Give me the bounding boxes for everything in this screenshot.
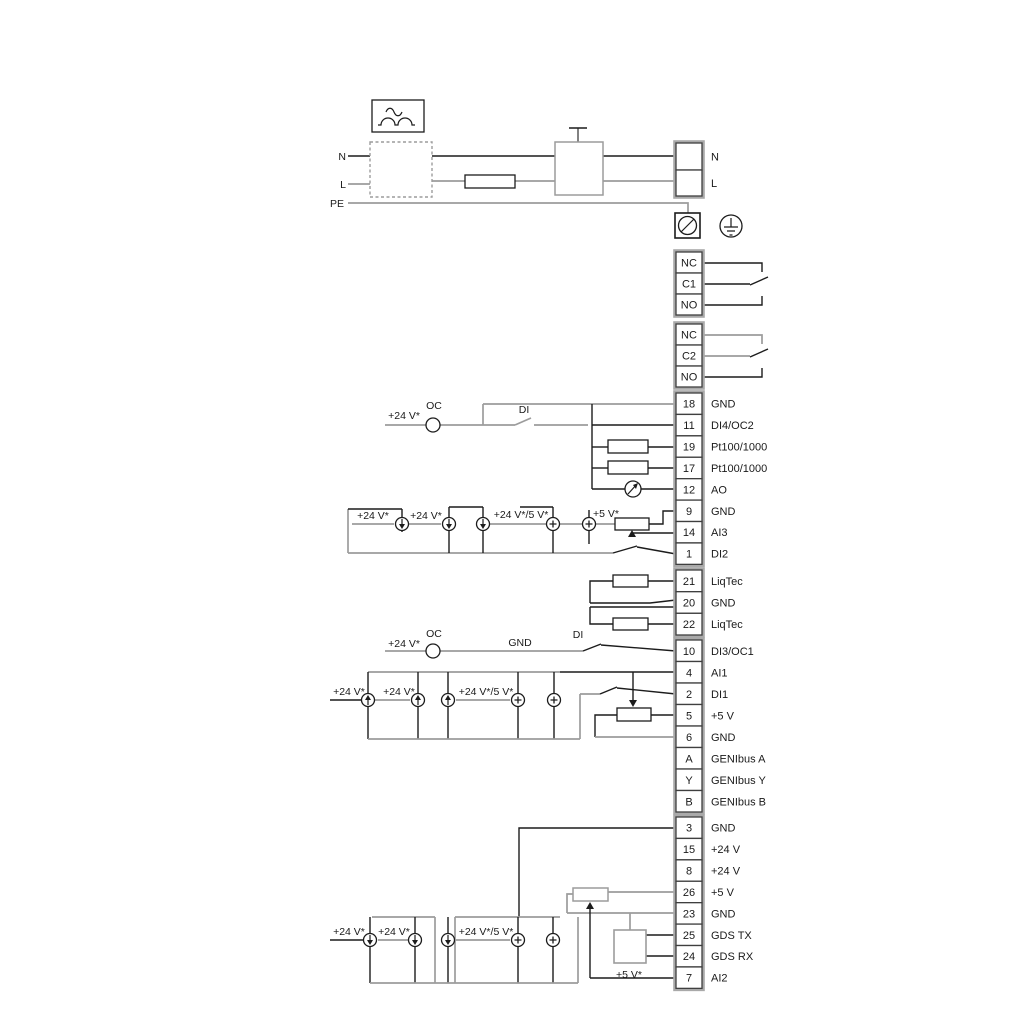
terminal-label: GDS RX	[711, 951, 754, 963]
terminal-number: NC	[681, 258, 697, 270]
open-collector-icon	[426, 418, 440, 432]
annotation-mains-pe-left: PE	[330, 198, 344, 210]
pump-wiring-diagram: NLNCC1NONCC2NO18GND11DI4/OC219Pt100/1000…	[0, 0, 1024, 1024]
annotation-ai1-24v-1: +24 V*	[333, 686, 365, 698]
terminal-cell-mains-block	[676, 143, 702, 170]
terminal-number: 24	[683, 951, 695, 963]
terminal-number: 17	[683, 463, 695, 475]
resistor-icon	[613, 618, 648, 630]
terminal-label: +24 V	[711, 844, 741, 856]
annotation-di3-oc: OC	[426, 628, 442, 640]
terminal-label: GENIbus B	[711, 796, 766, 808]
annotation-di3-supply: +24 V*	[388, 638, 420, 650]
terminal-label: GND	[711, 399, 736, 411]
potentiometer-icon	[617, 708, 651, 721]
terminal-label: +5 V	[711, 710, 735, 722]
terminal-label: DI3/OC1	[711, 646, 754, 658]
terminal-label: DI2	[711, 549, 728, 561]
mains-switch-box	[555, 142, 603, 195]
terminal-number: NC	[681, 330, 697, 342]
annotation-ai2-5v: +5 V*	[616, 969, 642, 981]
annotation-ai3-24v-2: +24 V*	[410, 510, 442, 522]
resistor-icon	[608, 461, 648, 474]
terminal-label: N	[711, 152, 719, 164]
terminal-label: GDS TX	[711, 930, 752, 942]
annotation-mains-n-left: N	[338, 151, 346, 163]
terminal-number: 5	[686, 710, 692, 722]
terminal-number: 22	[683, 619, 695, 631]
annotation-di3-gnd: GND	[508, 637, 532, 649]
terminal-number: 9	[686, 506, 692, 518]
annotation-ai2-24v-5v: +24 V*/5 V*	[459, 926, 514, 938]
fuse-icon	[465, 175, 515, 188]
terminal-label: GENIbus A	[711, 753, 766, 765]
annotation-di4-supply: +24 V*	[388, 410, 420, 422]
terminal-number: 12	[683, 484, 695, 496]
terminal-number: 7	[686, 973, 692, 985]
annotation-ai3-5v: +5 V*	[593, 508, 619, 520]
terminal-label: L	[711, 178, 717, 190]
terminal-number: C1	[682, 279, 696, 291]
terminal-number: 21	[683, 576, 695, 588]
annotation-ai2-24v-1: +24 V*	[333, 926, 365, 938]
annotation-di3-di: DI	[573, 629, 584, 641]
annotation-ai1-24v-2: +24 V*	[383, 686, 415, 698]
terminal-number: 4	[686, 667, 692, 679]
gds-module-box	[614, 930, 646, 963]
open-collector-icon	[426, 644, 440, 658]
terminal-number: 18	[683, 399, 695, 411]
resistor-icon	[613, 575, 648, 587]
terminal-label: GND	[711, 506, 736, 518]
terminal-number: 6	[686, 732, 692, 744]
annotation-ai3-24v-5v: +24 V*/5 V*	[494, 509, 549, 521]
terminal-label: LiqTec	[711, 576, 743, 588]
terminal-number: 19	[683, 442, 695, 454]
terminal-label: AI2	[711, 973, 728, 985]
terminal-label: DI4/OC2	[711, 420, 754, 432]
terminal-label: AI3	[711, 527, 728, 539]
terminal-number: 10	[683, 646, 695, 658]
terminal-cell-mains-block	[676, 170, 702, 196]
terminal-number: NO	[681, 300, 698, 312]
terminal-number: Y	[685, 775, 693, 787]
terminal-label: GENIbus Y	[711, 775, 766, 787]
terminal-number: 3	[686, 823, 692, 835]
terminal-number: 20	[683, 598, 695, 610]
terminal-number: B	[685, 796, 692, 808]
terminal-number: 11	[683, 420, 694, 432]
terminal-number: 14	[683, 527, 695, 539]
terminal-label: Pt100/1000	[711, 463, 767, 475]
power-module-box	[370, 142, 432, 197]
annotation-di4-di: DI	[519, 404, 530, 416]
terminal-label: Pt100/1000	[711, 442, 767, 454]
annotation-ai2-24v-2: +24 V*	[378, 926, 410, 938]
terminal-number: 1	[686, 549, 692, 561]
annotation-di4-oc: OC	[426, 400, 442, 412]
terminal-label: +5 V	[711, 887, 735, 899]
potentiometer-icon	[573, 888, 608, 901]
wiring-diagram-page: NLNCC1NONCC2NO18GND11DI4/OC219Pt100/1000…	[0, 0, 1024, 1024]
terminal-number: 23	[683, 908, 695, 920]
terminal-label: LiqTec	[711, 619, 743, 631]
terminal-label: DI1	[711, 689, 728, 701]
annotation-mains-l-left: L	[340, 179, 346, 191]
terminal-label: GND	[711, 823, 736, 835]
terminal-label: AI1	[711, 667, 728, 679]
terminal-label: GND	[711, 598, 736, 610]
annotation-ai1-24v-5v: +24 V*/5 V*	[459, 686, 514, 698]
terminal-label: AO	[711, 484, 727, 496]
resistor-icon	[608, 440, 648, 453]
terminal-number: NO	[681, 372, 698, 384]
terminal-label: GND	[711, 732, 736, 744]
annotation-ai3-24v-1: +24 V*	[357, 510, 389, 522]
terminal-label: GND	[711, 908, 736, 920]
terminal-number: C2	[682, 351, 696, 363]
potentiometer-icon	[615, 518, 649, 530]
terminal-number: 8	[686, 866, 692, 878]
terminal-number: 26	[683, 887, 695, 899]
terminal-number: 15	[683, 844, 695, 856]
terminal-number: A	[685, 753, 693, 765]
terminal-number: 2	[686, 689, 692, 701]
terminal-label: +24 V	[711, 866, 741, 878]
terminal-number: 25	[683, 930, 695, 942]
